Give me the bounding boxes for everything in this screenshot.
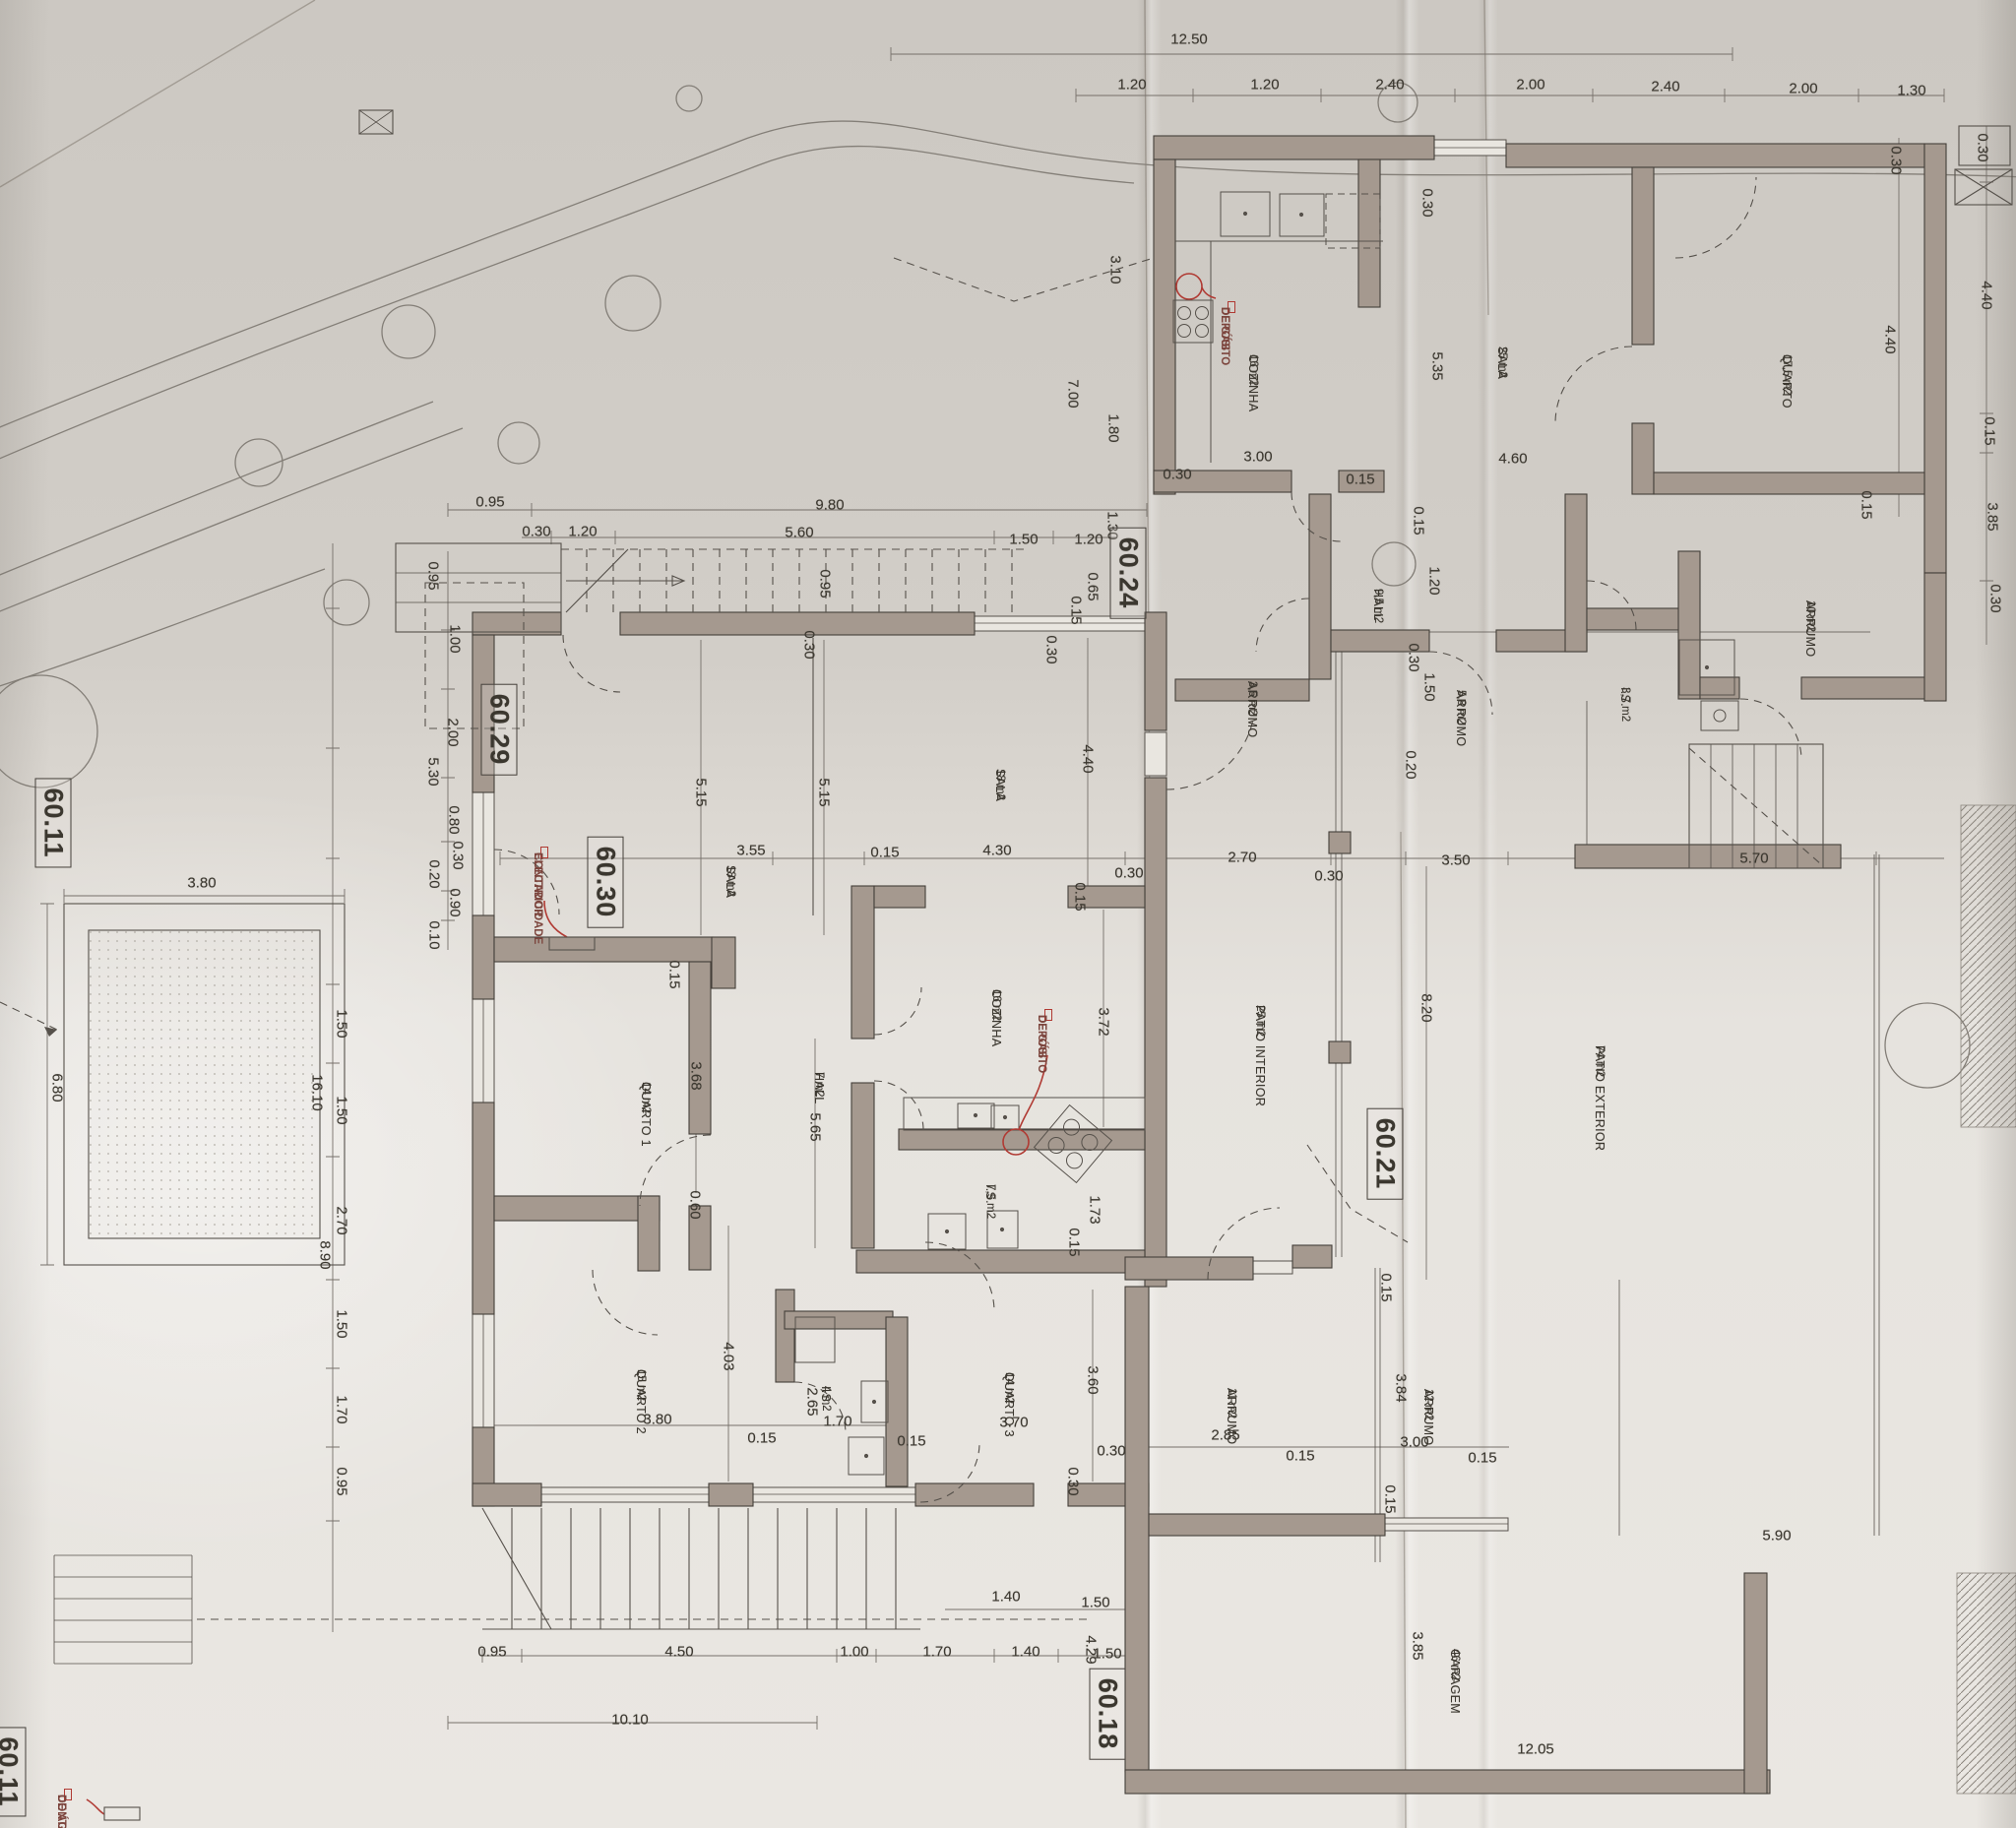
dimension-label: 9.80	[815, 497, 844, 514]
dimension-label: 0.30	[801, 630, 818, 659]
room-area: 9,5 m2	[1371, 589, 1385, 623]
room-area: 11 m2	[1225, 1388, 1238, 1418]
dimension-label: 0.15	[1411, 506, 1427, 535]
dimension-label: 0.15	[1382, 1484, 1399, 1513]
dimension-label: 1.00	[840, 1644, 868, 1661]
dimension-label: 0.30	[1975, 133, 1991, 161]
dimension-label: 1.80	[1105, 413, 1122, 442]
dimension-label: 3.10	[1107, 255, 1124, 284]
dimension-label: 1.40	[991, 1589, 1020, 1606]
room-area: 5,8 m2	[1454, 690, 1468, 725]
dimension-label: 1.50	[1093, 1646, 1121, 1663]
plot-number-label: 60.11	[0, 1727, 27, 1816]
dimension-label: 4.40	[1882, 325, 1899, 353]
plot-number-label: 60.21	[1367, 1108, 1404, 1200]
dimension-label: 1.20	[568, 524, 597, 540]
room-area: 25 m2	[1253, 1005, 1267, 1037]
dimension-label: 4.50	[664, 1644, 693, 1661]
dimension-label: 1.50	[334, 1009, 350, 1038]
dimension-label: 0.30	[1114, 865, 1143, 882]
dimension-label: 0.20	[1403, 750, 1419, 779]
dimension-label: 3.00	[1243, 449, 1272, 466]
room-area: 12 m2	[1421, 1389, 1435, 1420]
room-area: 7 m2	[812, 1072, 826, 1098]
dimension-label: 5.15	[816, 778, 833, 806]
dimension-label: 1.50	[1081, 1595, 1109, 1611]
dimension-label: 0.15	[1858, 490, 1875, 519]
red-annotation-label: CONTADORELECTRICIDADE	[540, 847, 548, 858]
dimension-label: 1.70	[334, 1395, 350, 1423]
plot-number-label: 60.18	[1090, 1669, 1126, 1760]
room-area: 16 m2	[989, 989, 1003, 1021]
dimension-label: 3.55	[736, 843, 765, 859]
dimension-label: 0.30	[1314, 868, 1343, 885]
dimension-label: 0.95	[425, 561, 442, 590]
dimension-label: 0.15	[897, 1433, 925, 1450]
dimension-label: 2.00	[445, 718, 462, 746]
dimension-label: 5.90	[1762, 1528, 1791, 1544]
dimension-label: 0.80	[446, 805, 463, 834]
room-area: 7,5 m2	[983, 1184, 997, 1219]
dimension-label: 0.95	[334, 1467, 350, 1495]
dimension-label: 8.90	[317, 1240, 334, 1269]
dimension-label: 0.60	[687, 1190, 704, 1219]
dimension-label: 7.00	[1065, 379, 1082, 408]
dimension-label: 0.15	[1982, 416, 1998, 445]
dimension-label: 0.95	[817, 569, 834, 598]
dimension-label: 0.15	[1072, 882, 1089, 911]
dimension-label: 0.15	[666, 960, 683, 988]
dimension-label: 2.70	[1228, 850, 1256, 866]
dimension-label: 5.65	[807, 1112, 824, 1141]
red-annotation-label: DEPÓSITODE GÁS	[1044, 1009, 1052, 1021]
dimension-label: 8.20	[1418, 993, 1435, 1022]
dimension-label: 3.80	[187, 875, 216, 892]
dimension-label: 0.15	[1066, 1228, 1083, 1256]
dimension-label: 3.60	[1085, 1365, 1102, 1394]
dimension-label: 3.85	[1410, 1631, 1426, 1660]
dimension-label: 1.73	[1087, 1195, 1103, 1224]
dimension-label: 1.20	[1117, 77, 1146, 94]
room-area: 10 m2	[1803, 600, 1817, 632]
dimension-label: 5.30	[425, 757, 442, 786]
red-annotation-line: DE GÁS	[1034, 1015, 1048, 1058]
red-annotation-label: DEPÓSITODE GÁS	[1228, 301, 1235, 313]
dimension-label: 0.30	[1888, 146, 1905, 174]
dimension-label: 1.50	[334, 1309, 350, 1338]
dimension-label: 0.90	[447, 888, 464, 916]
dimension-label: 4.40	[1979, 281, 1995, 309]
red-annotation-line: DE GÁS	[1217, 307, 1231, 350]
dimension-label: 1.50	[334, 1096, 350, 1124]
dimension-label: 0.15	[1378, 1273, 1395, 1301]
dimension-label: 2.40	[1651, 79, 1679, 95]
plot-number-label: 60.11	[35, 778, 72, 867]
dimension-label: 2.40	[1375, 77, 1404, 94]
room-area: 74 m2	[1593, 1045, 1606, 1077]
dimension-label: 2.00	[1789, 81, 1817, 97]
dimension-label: 4.60	[1498, 451, 1527, 468]
dimension-label: 1.50	[1421, 672, 1438, 701]
dimension-label: 0.65	[1085, 572, 1102, 600]
dimension-label: 5.60	[785, 525, 813, 541]
dimension-label: 10.10	[611, 1712, 649, 1729]
red-annotation-label: CONTADORDE ÁGUA	[64, 1789, 72, 1800]
labels-layer: 12.501.201.202.402.002.402.001.303.107.0…	[0, 0, 2016, 1828]
dimension-label: 1.70	[823, 1414, 851, 1430]
dimension-label: 0.15	[870, 845, 899, 861]
room-area: 17,5 m2	[1780, 354, 1794, 396]
dimension-label: 2.00	[1516, 77, 1544, 94]
dimension-label: 0.30	[522, 524, 550, 540]
red-annotation-line: DE ÁGUA	[53, 1795, 68, 1828]
room-area: 3,7 m2	[1618, 687, 1632, 722]
dimension-label: 3.68	[688, 1061, 705, 1090]
room-area: 18 m2	[724, 865, 737, 897]
room-area: 16 m2	[1246, 354, 1260, 386]
dimension-label: 4.40	[1080, 744, 1097, 773]
room-area: 15 m2	[634, 1369, 648, 1401]
dimension-label: 0.30	[1419, 188, 1436, 217]
dimension-label: 3.50	[1441, 852, 1470, 869]
dimension-label: 4.30	[982, 843, 1011, 859]
dimension-label: 0.30	[450, 841, 467, 869]
dimension-label: 12.05	[1517, 1741, 1554, 1758]
room-area: 25 m2	[1495, 347, 1509, 378]
room-area: 46 m2	[1448, 1649, 1462, 1680]
plot-number-label: 60.24	[1110, 528, 1147, 619]
dimension-label: 3.84	[1393, 1373, 1410, 1402]
dimension-label: 1.20	[1250, 77, 1279, 94]
dimension-label: 0.30	[1097, 1443, 1125, 1460]
room-area: 4 m2	[819, 1386, 833, 1412]
dimension-label: 0.95	[475, 494, 504, 511]
dimension-label: 1.40	[1011, 1644, 1039, 1661]
dimension-label: 0.30	[1987, 584, 2004, 612]
room-area: 18 m2	[993, 769, 1007, 800]
dimension-label: 0.30	[1163, 467, 1191, 483]
dimension-label: 0.30	[1043, 635, 1060, 663]
floor-plan-canvas: 12.501.201.202.402.002.402.001.303.107.0…	[0, 0, 2016, 1828]
room-area: 14 m2	[1002, 1372, 1016, 1404]
dimension-label: 0.15	[747, 1430, 776, 1447]
dimension-label: 3.72	[1096, 1007, 1112, 1036]
dimension-label: 1.20	[1426, 566, 1443, 595]
dimension-label: 0.15	[1286, 1448, 1314, 1465]
dimension-label: 5.70	[1739, 851, 1768, 867]
dimension-label: 0.15	[1068, 596, 1085, 624]
dimension-label: 12.50	[1170, 32, 1208, 48]
dimension-label: 0.30	[1065, 1467, 1082, 1495]
dimension-label: 1.00	[447, 624, 464, 653]
dimension-label: 6.80	[49, 1073, 66, 1102]
dimension-label: 4.03	[721, 1342, 737, 1370]
dimension-label: 1.30	[1897, 83, 1925, 99]
dimension-label: 1.50	[1009, 532, 1038, 548]
dimension-label: 3.85	[1984, 502, 2001, 531]
dimension-label: 0.10	[426, 920, 443, 949]
dimension-label: 0.30	[1406, 643, 1422, 671]
dimension-label: 0.15	[1468, 1450, 1496, 1467]
dimension-label: 2.70	[334, 1206, 350, 1234]
red-annotation-line: ELECTRICIDADE	[530, 852, 544, 944]
dimension-label: 0.95	[477, 1644, 506, 1661]
dimension-label: 0.15	[1346, 472, 1374, 488]
dimension-label: 16.10	[309, 1074, 326, 1111]
dimension-label: 5.35	[1429, 351, 1446, 380]
plot-number-label: 60.30	[588, 837, 624, 928]
dimension-label: 1.20	[1074, 532, 1102, 548]
room-area: 3,5 m2	[1245, 681, 1259, 716]
room-area: 14 m2	[639, 1082, 653, 1113]
dimension-label: 5.15	[693, 778, 710, 806]
plot-number-label: 60.29	[481, 684, 518, 776]
dimension-label: 1.70	[922, 1644, 951, 1661]
dimension-label: 0.20	[426, 859, 443, 888]
